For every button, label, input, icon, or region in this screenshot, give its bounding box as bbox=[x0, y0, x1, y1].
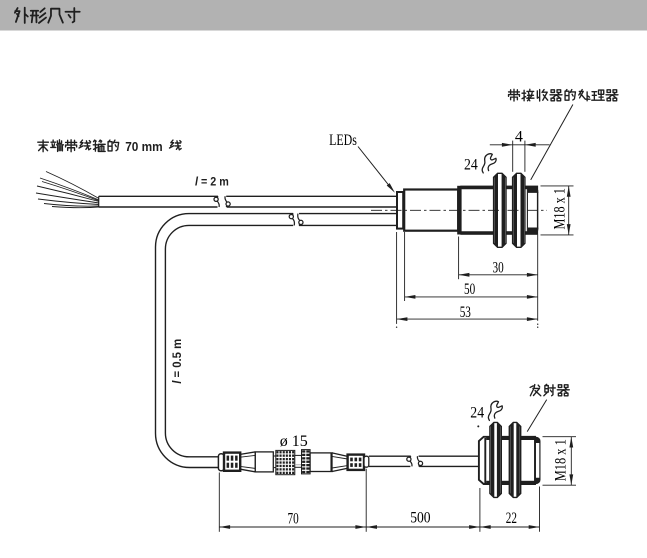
svg-text:70: 70 bbox=[288, 510, 299, 527]
svg-text:4: 4 bbox=[515, 128, 523, 145]
svg-text:50: 50 bbox=[464, 281, 475, 298]
svg-text:500: 500 bbox=[410, 509, 430, 526]
svg-text:M18 x 1: M18 x 1 bbox=[552, 439, 569, 481]
svg-text:M18 x 1: M18 x 1 bbox=[551, 188, 568, 229]
svg-text:24: 24 bbox=[464, 156, 478, 173]
svg-text:l = 2 m: l = 2 m bbox=[195, 175, 229, 189]
svg-text:24: 24 bbox=[470, 404, 484, 421]
svg-text:LEDs: LEDs bbox=[329, 132, 357, 149]
svg-text:l = 0.5 m: l = 0.5 m bbox=[170, 339, 184, 384]
svg-text:70 mm: 70 mm bbox=[125, 139, 163, 154]
svg-text:30: 30 bbox=[493, 259, 504, 276]
svg-text:53: 53 bbox=[460, 304, 471, 321]
svg-text:22: 22 bbox=[506, 510, 517, 527]
svg-text:ø 15: ø 15 bbox=[280, 433, 308, 450]
